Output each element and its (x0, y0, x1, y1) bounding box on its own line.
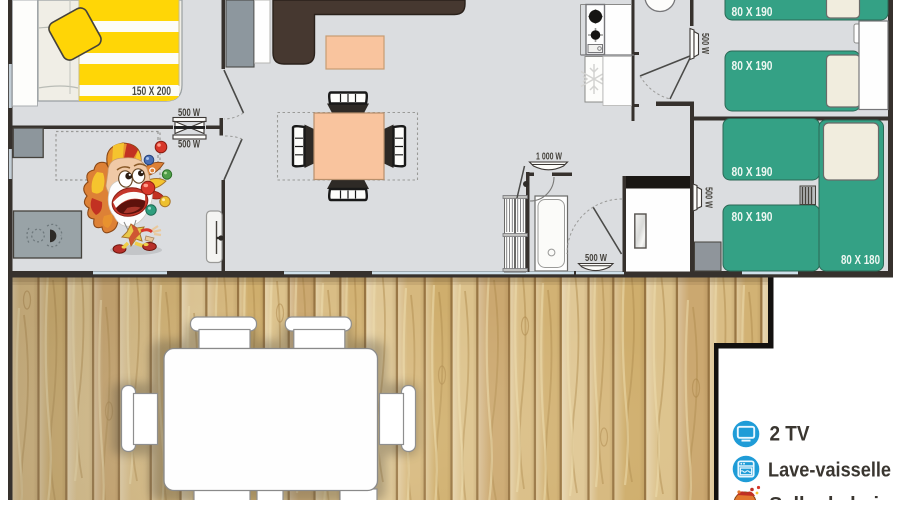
svg-text:500 W: 500 W (703, 187, 714, 208)
svg-text:80 X 190: 80 X 190 (732, 58, 773, 73)
svg-text:500 W: 500 W (178, 107, 200, 119)
svg-text:80 X 180: 80 X 180 (841, 252, 880, 267)
svg-text:Salle de bain: Salle de bain (769, 494, 891, 500)
svg-text:500 W: 500 W (585, 252, 607, 264)
svg-text:500 W: 500 W (178, 139, 200, 151)
svg-text:80 X 190: 80 X 190 (732, 4, 773, 19)
svg-text:2 TV: 2 TV (770, 423, 810, 446)
svg-text:1 000 W: 1 000 W (536, 152, 562, 163)
svg-text:150 X 200: 150 X 200 (132, 84, 171, 98)
svg-text:500 W: 500 W (699, 33, 710, 54)
svg-text:80 X 190: 80 X 190 (732, 209, 773, 224)
svg-text:80 X 190: 80 X 190 (732, 164, 773, 179)
svg-text:Lave-vaisselle: Lave-vaisselle (768, 460, 891, 482)
